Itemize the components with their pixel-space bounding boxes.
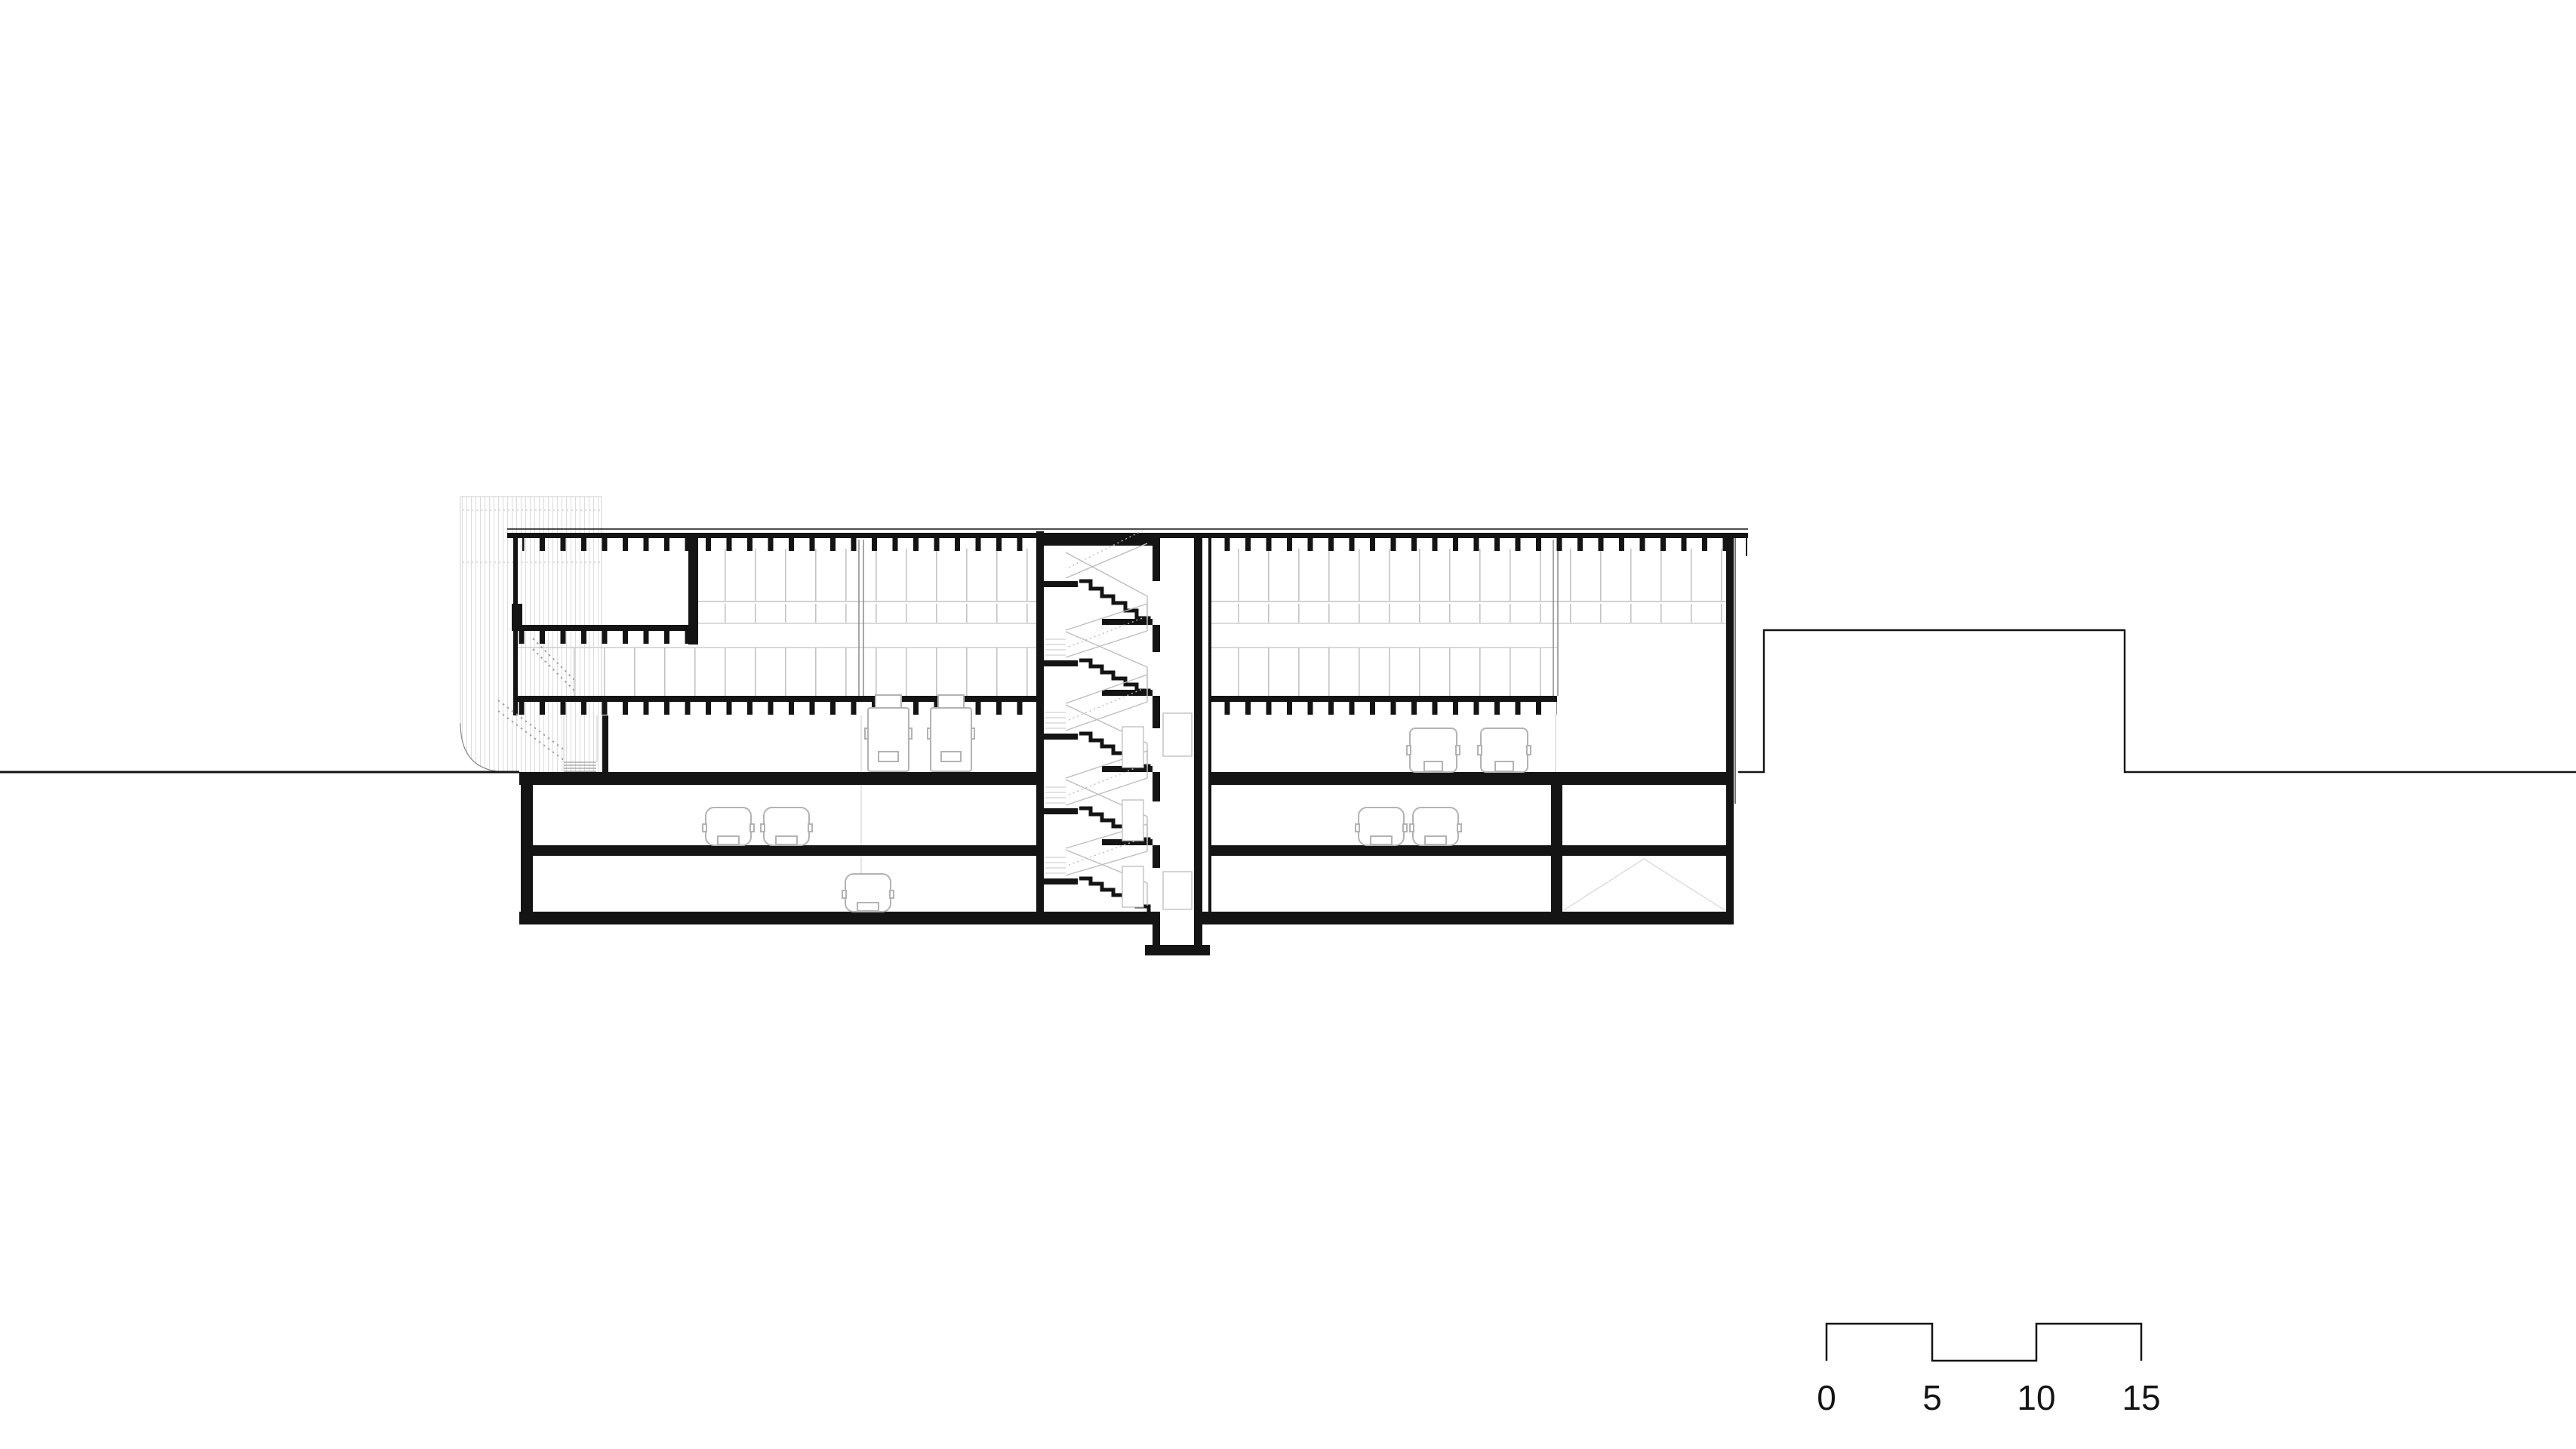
van (1407, 728, 1460, 772)
spandrel-left (698, 604, 1036, 623)
glazing-upper-left (698, 549, 1036, 601)
basement-ramp (1564, 859, 1725, 910)
door-leaf-b1 (1122, 800, 1143, 841)
glazing-upper-right (1211, 549, 1726, 601)
elevator-counterweight (1163, 872, 1192, 909)
door-opening-l2 (1153, 581, 1160, 625)
stair-core (1036, 530, 1211, 955)
scale-bar-line (1827, 1324, 2141, 1361)
level1-slab-right (1208, 696, 1557, 702)
mid-slab-joists (518, 631, 698, 644)
door-leaf-ground (1122, 727, 1143, 768)
door-leaf-b2 (1122, 866, 1143, 907)
half-landing-3 (1044, 734, 1078, 740)
level1-joists-right (1208, 702, 1557, 715)
half-landing-5 (1044, 878, 1078, 884)
right-wall (1726, 538, 1734, 924)
elevator-car (1163, 713, 1192, 756)
half-landing-1 (1044, 581, 1078, 587)
van (1478, 728, 1531, 772)
bottom-slab-left (519, 912, 1160, 924)
ramp-behind-lower (564, 648, 602, 696)
scale-label-10: 10 (2017, 1378, 2055, 1417)
core-wall-left (1036, 531, 1044, 924)
scale-label-0: 0 (1817, 1378, 1836, 1417)
door-opening-ground (1153, 728, 1160, 772)
half-landing-2 (1044, 660, 1078, 666)
glazing-lower-left (564, 648, 1036, 696)
car (761, 808, 812, 845)
scale-bar: 0 5 10 15 (1817, 1324, 2160, 1417)
car (1410, 808, 1461, 845)
ground-line-right-with-plateau (1738, 630, 2576, 772)
elevator-wall-right (1194, 538, 1202, 945)
ground-floor-left-wall (602, 715, 608, 774)
roof-slab (507, 533, 1748, 538)
car (842, 874, 894, 912)
car (1356, 808, 1407, 845)
door-opening-l1 (1153, 652, 1160, 696)
basement-mid-wall (1551, 785, 1562, 912)
section-drawing: 0 5 10 15 (0, 0, 2576, 1449)
glazing-lower-right (1211, 648, 1557, 696)
elevator-pit-floor (1145, 945, 1210, 955)
scale-label-15: 15 (2122, 1378, 2160, 1417)
scale-label-5: 5 (1922, 1378, 1942, 1417)
upper-room-wall (688, 537, 698, 645)
core-roof-beam (1044, 538, 1153, 546)
drawing-canvas: 0 5 10 15 (0, 0, 2576, 1449)
core-outer-wall-right (1208, 538, 1211, 912)
ramp-behind-upper (564, 552, 602, 601)
bottom-slab-right (1202, 912, 1734, 924)
spandrel-right (1211, 604, 1726, 623)
half-landing-4 (1044, 808, 1078, 814)
left-wall (513, 537, 518, 715)
door-opening-b1 (1153, 801, 1160, 845)
car (703, 808, 754, 845)
basement-left-wall (521, 785, 533, 912)
door-opening-b2 (1153, 868, 1160, 912)
ramp-chevron (1564, 859, 1725, 910)
mid-slab-left (518, 625, 698, 631)
